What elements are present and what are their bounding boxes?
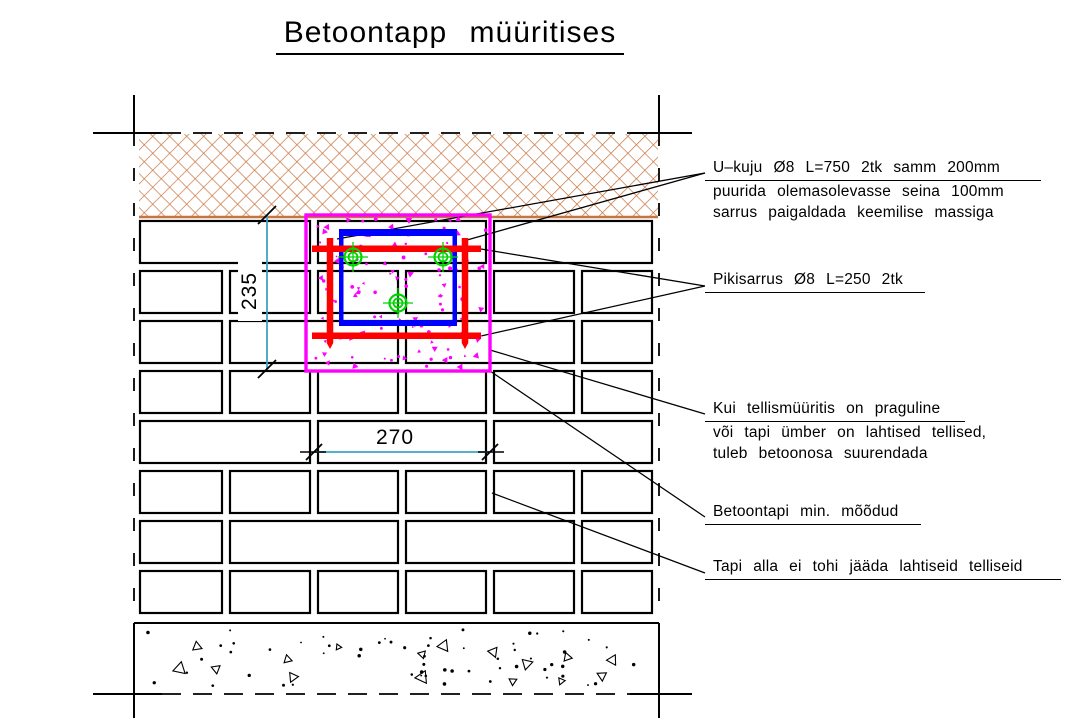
annotation-loose-bricks-line1: Tapi alla ei tohi jääda lahtiseid tellis… [705,556,1061,580]
technical-drawing-svg [0,0,1071,722]
annotation-u-bars: U–kuju Ø8 L=750 2tk samm 200mm puurida o… [705,157,1041,223]
annotation-u-bars-line3: sarrus paigaldada keemilise massiga [705,202,1041,223]
drawing-title-text: Betoontapp müüritises [276,16,625,55]
annotation-min-dimensions-line1: Betoontapi min. mõõdud [705,501,921,525]
annotation-cracked-masonry-line2: või tapi ümber on lahtised tellised, [705,422,986,443]
dimension-label-horizontal: 270 [365,426,425,450]
annotation-u-bars-line2: puurida olemasolevasse seina 100mm [705,181,1041,202]
annotation-min-dimensions: Betoontapi min. mõõdud [705,501,921,525]
dimension-label-vertical: 235 [238,261,262,321]
drawing-canvas: Betoontapp müüritises U–kuju Ø8 L=750 2t… [0,0,1071,722]
annotation-cracked-masonry-line3: tuleb betoonosa suurendada [705,443,986,464]
annotation-loose-bricks: Tapi alla ei tohi jääda lahtiseid tellis… [705,556,1061,580]
annotation-cracked-masonry: Kui tellismüüritis on praguline või tapi… [705,398,986,464]
annotation-u-bars-line1: U–kuju Ø8 L=750 2tk samm 200mm [705,157,1041,181]
annotation-longitudinal-bars: Pikisarrus Ø8 L=250 2tk [705,269,925,293]
annotation-longitudinal-bars-line1: Pikisarrus Ø8 L=250 2tk [705,269,925,293]
annotation-cracked-masonry-line1: Kui tellismüüritis on praguline [705,398,965,422]
drawing-title: Betoontapp müüritises [240,16,660,55]
